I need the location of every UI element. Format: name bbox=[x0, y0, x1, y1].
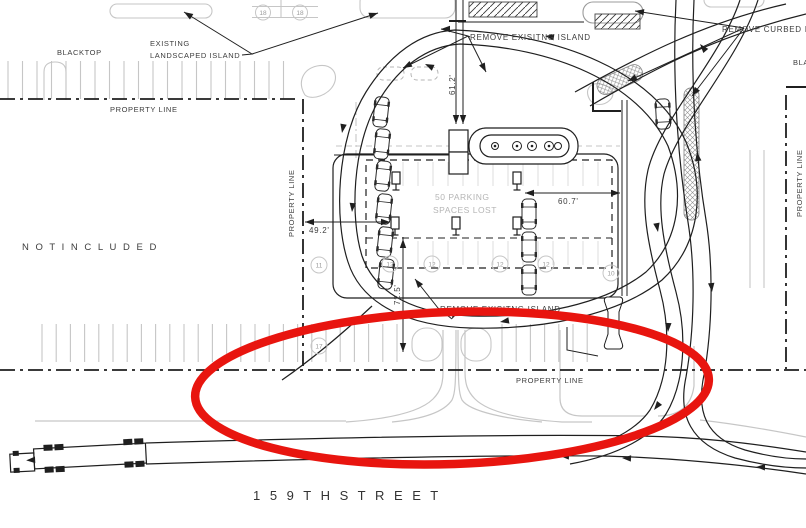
not-included-label: N O T I N C L U D E D bbox=[22, 242, 158, 253]
property-line-label-right: PROPERTY LINE bbox=[795, 149, 804, 217]
parking-lost-label-line1: 50 PARKING bbox=[435, 192, 489, 202]
parking-lost-label-line2: SPACES LOST bbox=[433, 205, 497, 215]
parking-stall-lines-bottom-left bbox=[42, 324, 397, 362]
existing-island-label-line1: EXISTING bbox=[150, 39, 190, 48]
parking-stall-lines-top bbox=[8, 61, 284, 99]
truck-turning-template bbox=[9, 438, 146, 475]
stall-count-badge: 17 bbox=[315, 344, 323, 351]
stall-count-badge: 12 bbox=[386, 262, 394, 269]
remove-curbed-island-label: REMOVE CURBED IS bbox=[722, 25, 806, 34]
street-name-label: 1 5 9 T H S T R E E T bbox=[253, 488, 441, 503]
stall-count-badge: 12 bbox=[496, 262, 504, 269]
site-plan-page: BLACKTOP EXISTING LANDSCAPED ISLAND PROP… bbox=[0, 0, 806, 528]
stall-count-badge: 18 bbox=[296, 10, 304, 17]
fuel-canopy bbox=[334, 0, 584, 174]
remove-island-label-top: REMOVE EXISITNG ISLAND bbox=[470, 33, 591, 42]
blacktop-label: BLACKTOP bbox=[57, 48, 102, 57]
stall-count-badge: 12 bbox=[542, 262, 550, 269]
landscape-leaf-shape bbox=[301, 65, 335, 97]
price-sign bbox=[449, 152, 468, 174]
dimension-61: 61.2' bbox=[448, 74, 457, 95]
property-line-label-top: PROPERTY LINE bbox=[110, 105, 178, 114]
stall-count-badges: 18 18 11 12 12 12 12 17 10 bbox=[256, 5, 620, 354]
stall-count-badge: 10 bbox=[607, 271, 615, 278]
price-sign bbox=[449, 130, 468, 152]
dimension-49: 49.2' bbox=[309, 226, 330, 235]
dimension-72: 72.5' bbox=[393, 284, 402, 305]
light-poles bbox=[391, 172, 521, 235]
property-line-label-bottom: PROPERTY LINE bbox=[516, 376, 584, 385]
parking-stall-lines-bottom-right bbox=[502, 324, 587, 362]
stall-count-badge: 12 bbox=[428, 262, 436, 269]
stall-count-badge: 18 bbox=[259, 10, 267, 17]
existing-island-label-line2: LANDSCAPED ISLAND bbox=[150, 51, 240, 60]
dimension-60: 60.7' bbox=[558, 197, 579, 206]
blacktop-label-right: BLACKTOP bbox=[793, 58, 806, 67]
parking-stall-lines-lot-row1 bbox=[388, 162, 598, 186]
site-plan-drawing: BLACKTOP EXISTING LANDSCAPED ISLAND PROP… bbox=[0, 0, 806, 528]
highlight-ellipse-annotation bbox=[193, 303, 712, 473]
parking-stall-lines-lot-row2 bbox=[388, 241, 598, 265]
property-line-label-left: PROPERTY LINE bbox=[287, 169, 296, 237]
removed-pump-islands-dashed bbox=[377, 67, 438, 80]
truck-turning-paths bbox=[146, 0, 806, 474]
stall-count-badge: 11 bbox=[316, 263, 323, 270]
flow-and-dimension-arrowheads bbox=[182, 8, 765, 471]
